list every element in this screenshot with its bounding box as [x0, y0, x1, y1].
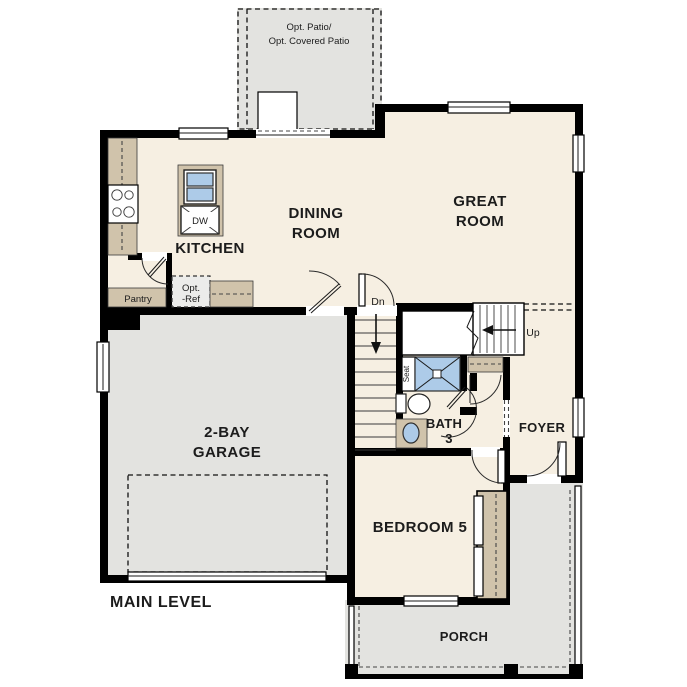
opt-ref-label-2: -Ref [182, 294, 200, 305]
dining-label-1: DINING [289, 205, 344, 222]
great-room-side-window [573, 135, 584, 172]
foyer-cased-opening [503, 400, 510, 437]
dishwasher-label: DW [192, 216, 208, 227]
great-label-2: ROOM [456, 213, 504, 230]
patio-area: Opt. Patio/ Opt. Covered Patio [237, 8, 382, 130]
floor-plan-drawing: Opt. Patio/ Opt. Covered Patio 2-BAY GAR… [0, 0, 687, 687]
porch-left-edge [349, 606, 354, 666]
opt-refrigerator: Opt. -Ref [172, 276, 210, 307]
shower: Seat [402, 357, 460, 391]
patio-pad [258, 92, 297, 130]
vanity-sink [403, 423, 419, 443]
bedroom-label: BEDROOM 5 [373, 519, 467, 536]
dishwasher: DW [181, 206, 219, 234]
great-room-window [448, 102, 510, 113]
kitchen-window [179, 128, 228, 139]
bedroom-door-opening [471, 447, 500, 457]
pantry-label: Pantry [124, 294, 152, 305]
porch-label: PORCH [440, 629, 488, 644]
stairs-down-label: Dn [371, 296, 385, 308]
garage-entry-opening [306, 306, 344, 316]
kitchen-island: DW [178, 165, 223, 236]
shower-seat-label: Seat [402, 365, 411, 382]
garage-door-opening [128, 572, 326, 581]
stairs-up: Up [402, 303, 540, 355]
garage-label-2: GARAGE [193, 444, 261, 461]
toilet [396, 394, 430, 414]
patio-slider-opening [256, 129, 330, 138]
bedroom-closet [474, 491, 507, 599]
bath-number: 3 [445, 431, 453, 446]
pantry-door-opening [142, 252, 167, 261]
garage-label-1: 2-BAY [204, 424, 250, 441]
patio-label-2: Opt. Covered Patio [269, 36, 350, 47]
stairs-up-label: Up [526, 327, 540, 339]
bedroom-window [404, 596, 458, 606]
vanity [396, 419, 427, 448]
kitchen-label: KITCHEN [175, 240, 244, 257]
garage-area: 2-BAY GARAGE [104, 311, 351, 579]
closet-bypass-door-1 [474, 496, 483, 545]
patio-label-1: Opt. Patio/ [287, 22, 332, 33]
garage-window [97, 342, 109, 392]
cooktop [108, 185, 138, 223]
closet-bypass-door-2 [474, 547, 483, 596]
opt-ref-label-1: Opt. [182, 283, 200, 294]
great-label-1: GREAT [453, 193, 506, 210]
foyer-window [573, 398, 584, 437]
porch-right-edge [575, 486, 581, 666]
bath-label: BATH [426, 416, 462, 431]
page-title: MAIN LEVEL [110, 594, 212, 611]
floor-plan: Opt. Patio/ Opt. Covered Patio 2-BAY GAR… [0, 0, 687, 687]
foyer-label: FOYER [519, 420, 566, 435]
kitchen-counter-2 [210, 281, 253, 307]
dining-label-2: ROOM [292, 225, 340, 242]
